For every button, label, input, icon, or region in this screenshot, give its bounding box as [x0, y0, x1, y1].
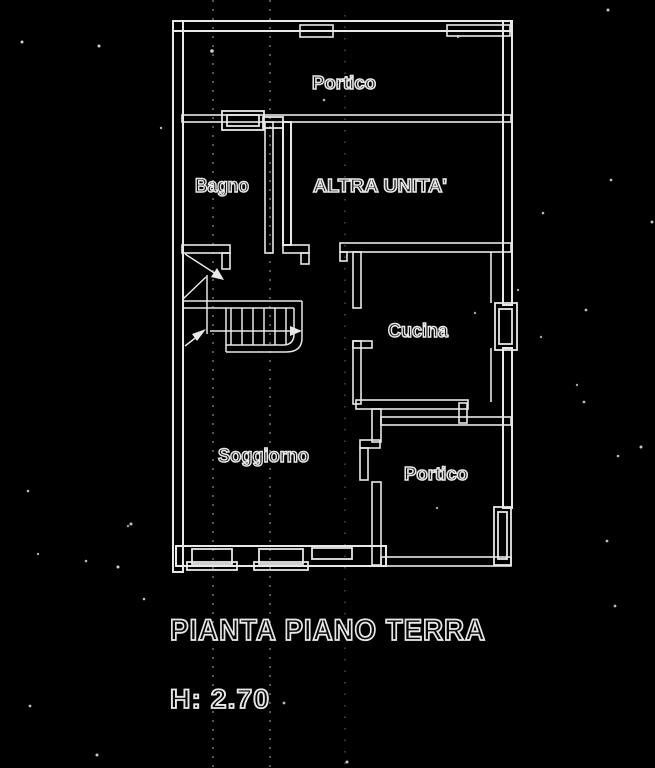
- wall-cucina-left-lower-cap: [353, 341, 372, 348]
- floor-plan-drawing: Portico Bagno ALTRA UNITA' Cucina Soggio…: [0, 0, 655, 768]
- wall-passage-v1: [372, 409, 381, 442]
- scanned-floor-plan-page: Portico Bagno ALTRA UNITA' Cucina Soggio…: [0, 0, 655, 768]
- wall-cucina-top-endcap: [340, 252, 347, 261]
- window-portico-lower-right-inner: [498, 512, 507, 559]
- room-label-soggiorno: Soggiorno: [218, 446, 309, 467]
- walls: [173, 21, 512, 572]
- wall-bagno-bottom-hook: [222, 253, 230, 269]
- wall-cucina-left-upper: [353, 252, 361, 308]
- window-soggiorno-c: [312, 548, 352, 559]
- wall-cucina-left-lower: [353, 341, 361, 404]
- plan-title: PIANTA PIANO TERRA: [170, 614, 486, 647]
- wall-passage-v2: [360, 448, 368, 480]
- wall-portico-lower-jog: [459, 403, 467, 423]
- wall-altra-unita-left: [283, 122, 291, 245]
- wall-portico-lower-bottom: [381, 557, 511, 566]
- wall-portico-top-bottom: [182, 115, 511, 122]
- labels: Portico Bagno ALTRA UNITA' Cucina Soggio…: [170, 73, 486, 714]
- stair-turn-inner: [226, 308, 294, 345]
- window-cucina-right-inner: [499, 309, 512, 344]
- wall-right-exterior-lower: [503, 348, 512, 508]
- room-label-portico-lower: Portico: [404, 464, 468, 484]
- window-bagno-top-inner: [227, 115, 259, 126]
- wall-altra-unita-foot: [283, 245, 309, 253]
- wall-cucina-top: [340, 243, 511, 252]
- wall-cucina-bottom: [356, 400, 468, 409]
- wall-top-exterior: [173, 21, 511, 31]
- staircase: [183, 254, 302, 352]
- room-label-portico-top: Portico: [312, 73, 376, 93]
- room-label-bagno: Bagno: [195, 176, 249, 197]
- wall-portico-lower-left: [372, 482, 381, 565]
- wall-bagno-right: [265, 122, 273, 253]
- arrowhead-stair-right: [290, 326, 302, 336]
- wall-altra-unita-foot-stub: [301, 253, 309, 264]
- window-bagno-top: [222, 111, 264, 130]
- ceiling-height-label: H: 2.70: [170, 684, 270, 714]
- wall-bagno-bottom: [182, 245, 230, 253]
- wall-right-exterior-upper: [503, 21, 512, 305]
- room-label-cucina: Cucina: [388, 321, 448, 342]
- room-label-altra-unita: ALTRA UNITA': [313, 176, 447, 196]
- wall-left-exterior: [173, 21, 183, 572]
- wall-portico-lower-top: [381, 417, 511, 425]
- stair-break-diagonal: [183, 277, 206, 299]
